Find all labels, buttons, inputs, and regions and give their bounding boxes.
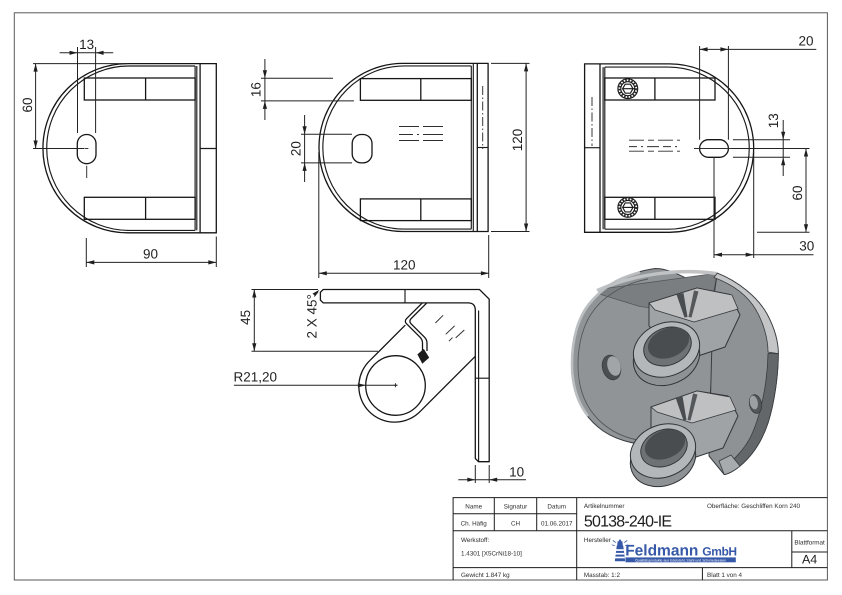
svg-text:120: 120 xyxy=(510,129,525,152)
svg-text:Artikelnummer: Artikelnummer xyxy=(584,503,625,510)
svg-text:Qualitätsprodukte aus Edelstah: Qualitätsprodukte aus Edelstahl, Stahl u… xyxy=(635,558,726,562)
svg-text:Signatur: Signatur xyxy=(504,503,527,510)
svg-text:10: 10 xyxy=(509,464,524,479)
svg-text:CH: CH xyxy=(511,521,521,528)
svg-text:01.06.2017: 01.06.2017 xyxy=(541,521,573,528)
svg-text:20: 20 xyxy=(288,141,303,156)
svg-text:Name: Name xyxy=(465,503,482,510)
svg-text:60: 60 xyxy=(790,185,805,200)
svg-text:R21,20: R21,20 xyxy=(234,370,278,385)
svg-text:Gewicht 1.847 kg: Gewicht 1.847 kg xyxy=(461,572,510,579)
svg-text:50138-240-IE: 50138-240-IE xyxy=(584,514,671,531)
svg-text:16: 16 xyxy=(249,82,264,97)
svg-text:Hersteller: Hersteller xyxy=(584,537,611,544)
svg-text:13: 13 xyxy=(79,37,94,52)
svg-text:Ch. Häfig: Ch. Häfig xyxy=(461,521,488,528)
svg-text:Blatt 1 von 4: Blatt 1 von 4 xyxy=(707,572,743,579)
svg-text:GmbH: GmbH xyxy=(702,545,736,559)
svg-text:Masstab: 1:2: Masstab: 1:2 xyxy=(584,572,621,579)
svg-text:120: 120 xyxy=(393,258,416,273)
svg-text:Datum: Datum xyxy=(547,503,566,510)
svg-text:2 X 45°: 2 X 45° xyxy=(305,294,320,338)
svg-text:Feldmann: Feldmann xyxy=(625,543,698,560)
svg-text:Werkstoff:: Werkstoff: xyxy=(461,537,489,544)
svg-text:30: 30 xyxy=(799,239,814,254)
svg-text:20: 20 xyxy=(798,34,813,49)
svg-text:45: 45 xyxy=(238,310,253,325)
svg-text:1.4301 [X5CrNi18-10]: 1.4301 [X5CrNi18-10] xyxy=(461,551,522,558)
svg-text:A4: A4 xyxy=(802,552,817,566)
svg-text:90: 90 xyxy=(143,247,158,262)
svg-text:Oberfläche: Geschliffen Korn: Oberfläche: Geschliffen Korn 240 xyxy=(707,503,800,510)
svg-text:60: 60 xyxy=(20,97,35,112)
svg-text:13: 13 xyxy=(766,113,781,128)
svg-text:Blattformat: Blattformat xyxy=(794,540,825,547)
